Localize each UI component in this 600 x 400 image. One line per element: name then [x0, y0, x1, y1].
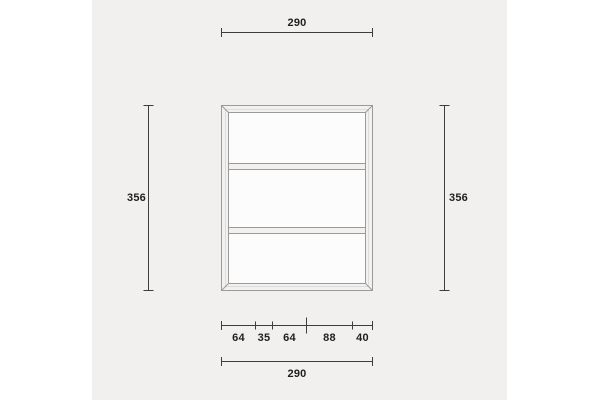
dim-label-bottom-total: 290 — [288, 368, 307, 380]
dim-line-bottom-total — [222, 357, 373, 366]
dim-line-top-width — [222, 28, 373, 37]
dim-line-right-height — [440, 105, 450, 291]
frame-outline — [222, 106, 373, 291]
dim-label-segment-3: 64 — [283, 332, 296, 344]
shelf-divider-2 — [229, 228, 366, 234]
dim-label-segment-4: 88 — [323, 332, 336, 344]
dim-label-top-width: 290 — [288, 17, 307, 29]
shelf-frame-drawing — [0, 0, 600, 400]
technical-drawing-canvas: 290 356 356 64 35 64 88 40 290 — [0, 0, 600, 400]
dim-label-segment-5: 40 — [356, 332, 369, 344]
dim-label-segment-1: 64 — [232, 332, 245, 344]
shelf-divider-1 — [229, 164, 366, 170]
dim-label-right-height: 356 — [449, 192, 468, 204]
frame-inner-rect — [229, 113, 366, 284]
dim-label-segment-2: 35 — [258, 332, 271, 344]
dim-label-left-height: 356 — [127, 192, 146, 204]
